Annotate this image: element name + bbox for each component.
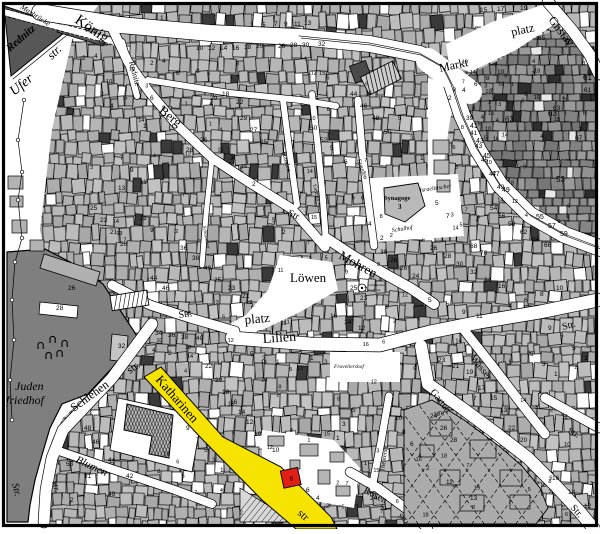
svg-text:11: 11 xyxy=(294,21,301,28)
svg-text:34: 34 xyxy=(484,277,492,284)
svg-text:34: 34 xyxy=(155,330,163,337)
svg-text:2: 2 xyxy=(448,95,452,102)
svg-text:10: 10 xyxy=(185,345,191,351)
svg-text:14: 14 xyxy=(455,338,461,344)
svg-text:27: 27 xyxy=(250,127,258,134)
svg-text:16: 16 xyxy=(534,95,540,101)
svg-text:32: 32 xyxy=(470,269,478,276)
svg-text:15: 15 xyxy=(373,468,379,474)
svg-text:13: 13 xyxy=(470,495,478,502)
svg-text:5: 5 xyxy=(460,223,463,229)
svg-text:5: 5 xyxy=(484,136,487,142)
svg-text:6: 6 xyxy=(176,460,179,466)
svg-text:friedhof: friedhof xyxy=(6,393,46,407)
svg-text:6: 6 xyxy=(365,81,368,87)
svg-text:2: 2 xyxy=(282,229,286,236)
svg-text:7: 7 xyxy=(90,191,93,197)
svg-text:12: 12 xyxy=(246,300,252,306)
svg-text:2: 2 xyxy=(326,503,330,510)
svg-text:1: 1 xyxy=(307,438,310,444)
svg-text:4: 4 xyxy=(477,215,480,221)
svg-text:48: 48 xyxy=(84,425,92,432)
svg-text:16: 16 xyxy=(434,412,440,418)
svg-text:15: 15 xyxy=(319,71,325,77)
svg-text:56: 56 xyxy=(498,213,506,220)
svg-text:9: 9 xyxy=(150,227,154,234)
svg-text:3: 3 xyxy=(542,361,546,368)
svg-text:2: 2 xyxy=(100,91,104,98)
svg-text:6: 6 xyxy=(361,196,364,202)
svg-text:41: 41 xyxy=(470,123,478,130)
svg-text:Synagoge: Synagoge xyxy=(384,195,410,202)
svg-text:5: 5 xyxy=(452,485,455,491)
svg-text:5: 5 xyxy=(528,487,531,493)
svg-text:11: 11 xyxy=(140,215,147,222)
svg-text:46: 46 xyxy=(360,103,368,110)
svg-text:4: 4 xyxy=(153,153,156,159)
svg-text:2: 2 xyxy=(252,181,256,188)
svg-text:platz: platz xyxy=(244,310,271,327)
svg-text:6: 6 xyxy=(344,159,348,166)
svg-text:41: 41 xyxy=(470,130,478,137)
svg-text:7: 7 xyxy=(466,463,469,469)
svg-text:5: 5 xyxy=(435,200,439,207)
svg-text:15: 15 xyxy=(261,360,267,366)
svg-text:4: 4 xyxy=(184,368,187,374)
svg-text:5: 5 xyxy=(124,96,127,102)
svg-text:2: 2 xyxy=(150,60,154,67)
svg-text:28: 28 xyxy=(444,253,452,260)
svg-text:45: 45 xyxy=(483,153,491,160)
svg-text:22: 22 xyxy=(205,363,213,370)
svg-text:7: 7 xyxy=(462,79,465,85)
svg-text:50: 50 xyxy=(384,129,392,136)
svg-text:49: 49 xyxy=(502,187,510,194)
svg-text:10: 10 xyxy=(498,82,504,88)
svg-text:9: 9 xyxy=(557,219,560,225)
svg-text:32: 32 xyxy=(318,41,326,48)
svg-text:20: 20 xyxy=(215,377,223,384)
svg-text:11: 11 xyxy=(562,97,568,103)
svg-text:49: 49 xyxy=(108,491,116,498)
svg-text:54: 54 xyxy=(490,205,498,212)
svg-text:10: 10 xyxy=(106,79,112,85)
svg-text:1: 1 xyxy=(554,371,558,378)
svg-text:1: 1 xyxy=(220,467,224,474)
svg-text:51: 51 xyxy=(84,473,92,480)
svg-text:12: 12 xyxy=(512,199,518,205)
svg-text:4: 4 xyxy=(219,127,222,133)
svg-text:14: 14 xyxy=(344,319,352,326)
svg-text:26: 26 xyxy=(430,245,438,252)
svg-text:7: 7 xyxy=(380,509,383,515)
svg-text:2: 2 xyxy=(426,465,430,472)
svg-text:26: 26 xyxy=(68,285,76,292)
svg-text:18: 18 xyxy=(222,389,230,396)
svg-text:18: 18 xyxy=(228,402,234,408)
svg-text:14: 14 xyxy=(307,169,313,175)
svg-text:28: 28 xyxy=(56,305,64,312)
svg-text:3: 3 xyxy=(342,421,346,428)
svg-text:18: 18 xyxy=(423,512,429,518)
svg-text:4: 4 xyxy=(508,303,512,310)
svg-text:61: 61 xyxy=(583,73,592,82)
svg-text:11: 11 xyxy=(278,268,284,274)
svg-text:17: 17 xyxy=(478,385,486,392)
svg-text:7: 7 xyxy=(120,155,124,162)
svg-text:Kastanie: Kastanie xyxy=(368,288,381,292)
svg-text:13: 13 xyxy=(118,185,126,192)
svg-text:12: 12 xyxy=(267,445,273,451)
svg-text:28: 28 xyxy=(290,42,298,49)
svg-text:10: 10 xyxy=(261,377,267,383)
svg-text:10: 10 xyxy=(486,160,492,166)
svg-text:55: 55 xyxy=(536,214,544,221)
svg-text:25: 25 xyxy=(350,285,358,292)
svg-text:7: 7 xyxy=(531,71,534,77)
svg-text:2: 2 xyxy=(240,511,243,517)
svg-text:5: 5 xyxy=(262,22,266,29)
svg-text:15: 15 xyxy=(488,111,494,117)
svg-text:6: 6 xyxy=(176,70,180,77)
svg-text:11: 11 xyxy=(140,179,147,186)
svg-text:6: 6 xyxy=(509,360,512,366)
svg-text:36: 36 xyxy=(168,332,176,339)
svg-text:15: 15 xyxy=(480,7,488,14)
svg-text:8: 8 xyxy=(540,291,544,298)
svg-text:4: 4 xyxy=(368,221,372,228)
svg-text:8: 8 xyxy=(461,125,464,131)
svg-text:1: 1 xyxy=(420,155,424,162)
svg-text:13: 13 xyxy=(297,366,303,372)
svg-text:1: 1 xyxy=(364,461,367,467)
svg-text:38: 38 xyxy=(181,334,189,341)
svg-text:3: 3 xyxy=(398,203,402,211)
svg-text:6: 6 xyxy=(413,366,416,372)
svg-text:8: 8 xyxy=(583,111,586,117)
svg-text:4: 4 xyxy=(462,87,466,94)
svg-text:6: 6 xyxy=(382,340,385,346)
svg-text:6: 6 xyxy=(527,350,530,356)
svg-text:8: 8 xyxy=(453,88,456,94)
svg-text:2: 2 xyxy=(488,100,491,106)
svg-text:6: 6 xyxy=(209,102,212,108)
svg-text:5: 5 xyxy=(330,145,334,152)
svg-text:7: 7 xyxy=(364,287,367,293)
svg-text:16: 16 xyxy=(330,313,338,320)
svg-text:23: 23 xyxy=(438,357,446,364)
svg-text:2: 2 xyxy=(175,229,178,235)
svg-text:10: 10 xyxy=(485,89,491,95)
svg-text:11: 11 xyxy=(476,313,483,320)
svg-text:13: 13 xyxy=(462,60,468,66)
svg-text:22: 22 xyxy=(236,99,244,106)
svg-text:5: 5 xyxy=(204,447,208,454)
svg-text:Juden: Juden xyxy=(15,379,44,393)
svg-text:7: 7 xyxy=(194,490,197,496)
svg-text:64: 64 xyxy=(532,236,540,243)
svg-text:24: 24 xyxy=(412,273,420,280)
svg-text:7: 7 xyxy=(474,396,477,402)
svg-text:12: 12 xyxy=(371,379,377,385)
svg-text:14: 14 xyxy=(138,118,144,124)
svg-text:13: 13 xyxy=(304,20,312,27)
svg-text:19: 19 xyxy=(520,5,528,12)
svg-text:3: 3 xyxy=(451,212,454,218)
svg-text:8: 8 xyxy=(486,75,490,82)
svg-text:14: 14 xyxy=(187,354,193,360)
svg-text:12: 12 xyxy=(562,415,568,421)
svg-text:9: 9 xyxy=(352,195,355,201)
svg-text:68: 68 xyxy=(470,243,478,250)
svg-text:3: 3 xyxy=(498,102,501,108)
svg-text:3: 3 xyxy=(410,135,414,142)
svg-text:46: 46 xyxy=(92,439,100,446)
svg-text:58: 58 xyxy=(508,221,516,228)
svg-text:14: 14 xyxy=(366,91,372,97)
svg-text:44: 44 xyxy=(108,457,116,464)
svg-text:26: 26 xyxy=(200,137,208,144)
svg-text:2: 2 xyxy=(524,92,527,98)
svg-text:7: 7 xyxy=(537,482,540,488)
svg-text:8: 8 xyxy=(472,505,475,511)
svg-text:8: 8 xyxy=(157,469,160,475)
svg-text:12: 12 xyxy=(311,71,317,77)
svg-text:40: 40 xyxy=(204,265,212,272)
svg-text:9: 9 xyxy=(462,309,466,316)
svg-text:12: 12 xyxy=(246,419,254,426)
svg-text:18: 18 xyxy=(441,453,447,459)
svg-text:7: 7 xyxy=(160,239,164,246)
svg-text:6: 6 xyxy=(150,95,154,102)
svg-text:8: 8 xyxy=(236,62,239,68)
svg-text:7: 7 xyxy=(307,240,310,246)
svg-text:7: 7 xyxy=(578,128,581,134)
svg-text:25: 25 xyxy=(90,205,98,212)
svg-text:44: 44 xyxy=(350,91,358,98)
svg-text:4: 4 xyxy=(525,213,528,219)
svg-text:5: 5 xyxy=(250,351,254,358)
svg-text:12: 12 xyxy=(228,338,234,344)
svg-text:10: 10 xyxy=(485,126,491,132)
svg-text:5: 5 xyxy=(222,315,225,321)
svg-text:3: 3 xyxy=(549,489,552,495)
svg-text:5: 5 xyxy=(272,217,276,224)
svg-text:28: 28 xyxy=(390,257,398,264)
svg-text:14: 14 xyxy=(497,197,503,203)
svg-text:7: 7 xyxy=(123,237,126,243)
svg-text:20: 20 xyxy=(256,43,264,50)
svg-text:1: 1 xyxy=(160,15,164,22)
svg-text:5: 5 xyxy=(341,505,344,511)
svg-text:10: 10 xyxy=(564,442,570,448)
svg-text:3: 3 xyxy=(455,165,458,171)
svg-text:7: 7 xyxy=(262,205,266,212)
svg-text:7: 7 xyxy=(560,335,564,342)
svg-text:16: 16 xyxy=(185,311,191,317)
svg-text:5: 5 xyxy=(398,115,402,122)
svg-text:7: 7 xyxy=(346,481,349,487)
svg-text:5: 5 xyxy=(352,407,356,414)
svg-text:20: 20 xyxy=(210,95,218,102)
svg-text:6: 6 xyxy=(410,441,414,448)
svg-text:48: 48 xyxy=(372,115,380,122)
svg-text:5: 5 xyxy=(325,255,328,261)
svg-text:3: 3 xyxy=(216,300,219,306)
svg-text:53: 53 xyxy=(66,461,74,468)
svg-text:8: 8 xyxy=(511,181,514,187)
svg-text:3: 3 xyxy=(212,457,216,464)
svg-text:22: 22 xyxy=(508,425,516,432)
svg-text:6: 6 xyxy=(327,107,330,113)
svg-text:rotblühende: rotblühende xyxy=(368,283,385,287)
svg-text:63: 63 xyxy=(548,109,557,118)
svg-text:10: 10 xyxy=(556,285,564,292)
svg-text:63: 63 xyxy=(566,39,574,46)
svg-text:6: 6 xyxy=(565,512,568,518)
svg-text:13: 13 xyxy=(116,231,122,237)
svg-text:42: 42 xyxy=(126,473,134,480)
svg-text:30: 30 xyxy=(380,249,388,256)
svg-text:1: 1 xyxy=(336,435,340,442)
svg-text:6: 6 xyxy=(566,214,569,220)
svg-text:17: 17 xyxy=(497,6,505,13)
svg-text:1: 1 xyxy=(474,372,477,378)
svg-text:6: 6 xyxy=(521,98,524,104)
svg-text:2: 2 xyxy=(336,480,339,486)
svg-text:Fraveliershof: Fraveliershof xyxy=(333,363,365,370)
svg-text:10: 10 xyxy=(254,431,262,438)
svg-text:53: 53 xyxy=(556,175,565,184)
svg-text:46: 46 xyxy=(162,285,170,292)
svg-text:5: 5 xyxy=(471,115,474,121)
svg-text:8: 8 xyxy=(290,428,293,434)
svg-text:4: 4 xyxy=(496,118,499,124)
svg-text:6: 6 xyxy=(541,492,544,498)
svg-text:4: 4 xyxy=(220,488,223,494)
svg-text:4: 4 xyxy=(540,134,543,140)
svg-text:9: 9 xyxy=(284,21,288,28)
svg-text:10: 10 xyxy=(129,66,135,72)
svg-text:4: 4 xyxy=(94,53,98,60)
svg-text:16: 16 xyxy=(280,321,286,327)
svg-text:6: 6 xyxy=(567,203,570,209)
svg-text:30: 30 xyxy=(456,261,464,268)
svg-text:4: 4 xyxy=(532,59,535,65)
svg-text:63: 63 xyxy=(505,115,514,124)
svg-text:9: 9 xyxy=(130,167,134,174)
svg-text:23: 23 xyxy=(360,295,368,302)
svg-text:5: 5 xyxy=(182,474,185,480)
svg-text:14: 14 xyxy=(520,398,526,404)
svg-text:38: 38 xyxy=(192,255,200,262)
svg-text:30: 30 xyxy=(302,42,310,49)
svg-text:5: 5 xyxy=(289,367,292,373)
svg-text:8: 8 xyxy=(582,61,585,67)
svg-text:3: 3 xyxy=(250,22,254,29)
svg-text:6: 6 xyxy=(452,145,455,151)
svg-text:8: 8 xyxy=(278,385,281,391)
svg-text:10: 10 xyxy=(309,116,315,122)
svg-text:1: 1 xyxy=(304,56,307,62)
svg-text:14: 14 xyxy=(502,132,508,138)
svg-text:12: 12 xyxy=(402,293,408,299)
svg-text:9: 9 xyxy=(548,325,552,332)
svg-text:7: 7 xyxy=(446,213,450,220)
svg-text:36: 36 xyxy=(180,245,188,252)
svg-text:8: 8 xyxy=(385,304,388,310)
svg-text:Lilien: Lilien xyxy=(262,330,296,347)
svg-text:65: 65 xyxy=(538,35,546,42)
svg-text:14: 14 xyxy=(238,409,246,416)
svg-text:52: 52 xyxy=(320,137,328,144)
svg-text:4: 4 xyxy=(495,389,498,395)
svg-text:7: 7 xyxy=(182,193,185,199)
svg-text:2: 2 xyxy=(513,456,516,462)
svg-text:9: 9 xyxy=(345,269,348,275)
svg-text:15: 15 xyxy=(311,215,317,221)
svg-text:20: 20 xyxy=(520,437,528,444)
svg-text:6: 6 xyxy=(326,76,329,82)
svg-text:23: 23 xyxy=(100,217,108,224)
svg-text:14: 14 xyxy=(470,70,476,76)
svg-text:25: 25 xyxy=(214,277,222,284)
svg-text:6: 6 xyxy=(477,122,480,128)
svg-text:4: 4 xyxy=(162,58,166,65)
svg-text:4: 4 xyxy=(481,115,484,121)
svg-text:3: 3 xyxy=(230,155,234,162)
svg-text:57: 57 xyxy=(548,223,556,230)
svg-text:2: 2 xyxy=(82,55,86,62)
svg-text:16: 16 xyxy=(416,457,422,463)
svg-text:24: 24 xyxy=(370,495,378,502)
svg-text:14: 14 xyxy=(568,489,576,496)
svg-text:18: 18 xyxy=(217,148,223,154)
svg-text:2: 2 xyxy=(390,233,393,239)
svg-text:2: 2 xyxy=(550,408,553,414)
svg-text:7: 7 xyxy=(465,208,468,214)
svg-text:13: 13 xyxy=(500,407,508,414)
svg-text:3: 3 xyxy=(535,405,538,411)
svg-text:1: 1 xyxy=(276,359,280,366)
svg-text:21: 21 xyxy=(242,293,250,300)
svg-text:70: 70 xyxy=(480,250,488,257)
svg-text:8: 8 xyxy=(402,429,406,436)
svg-text:6: 6 xyxy=(441,411,444,417)
svg-text:6: 6 xyxy=(474,81,478,88)
svg-text:15: 15 xyxy=(490,395,498,402)
svg-text:3: 3 xyxy=(145,83,148,89)
svg-text:7: 7 xyxy=(446,303,450,310)
svg-text:8: 8 xyxy=(380,214,383,220)
svg-text:14: 14 xyxy=(220,45,228,52)
svg-text:9: 9 xyxy=(504,73,507,79)
svg-text:50: 50 xyxy=(310,125,318,132)
svg-text:21: 21 xyxy=(452,363,460,370)
svg-text:1: 1 xyxy=(310,355,314,362)
svg-text:5: 5 xyxy=(428,297,432,304)
svg-text:7: 7 xyxy=(274,21,278,28)
svg-text:8: 8 xyxy=(377,262,380,268)
svg-text:8: 8 xyxy=(337,396,340,402)
svg-text:6: 6 xyxy=(306,487,310,494)
svg-text:15: 15 xyxy=(241,164,247,170)
svg-text:3: 3 xyxy=(90,165,93,171)
svg-text:1: 1 xyxy=(209,121,212,127)
svg-text:40: 40 xyxy=(196,335,204,342)
svg-text:59: 59 xyxy=(560,231,568,238)
svg-text:43: 43 xyxy=(476,138,484,145)
